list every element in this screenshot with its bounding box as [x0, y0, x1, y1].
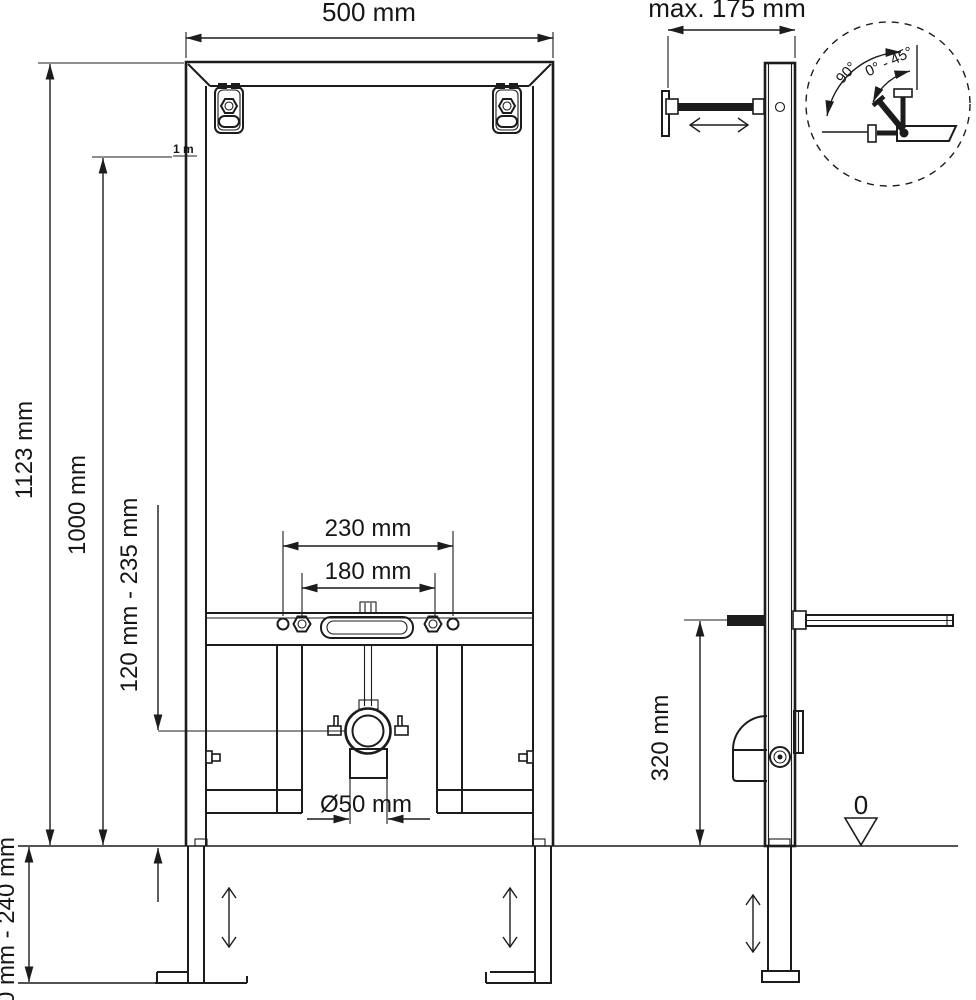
profile-rail	[765, 63, 795, 846]
dim-wall-distance: max. 175 mm	[648, 0, 806, 88]
angle-max-label: 90°	[833, 59, 861, 87]
side-fixing-bolt-right	[519, 751, 533, 763]
technical-drawing-canvas: 0 90° 0° - 45° 500 mm	[0, 0, 976, 1000]
dim-wall-distance-label: max. 175 mm	[648, 0, 806, 23]
dimensions: 500 mm max. 175 mm 1123 mm 1000 mm 1 m	[0, 0, 806, 1000]
drain-elbow	[733, 716, 767, 781]
datum-zero-label: 0	[854, 790, 868, 820]
support-rod-assembly	[727, 611, 953, 629]
dim-feet-range-label: 0 mm - 240 mm	[0, 837, 20, 1000]
dim-drain-diameter: Ø50 mm	[307, 754, 430, 824]
dim-fixture-height-label: 120 mm - 235 mm	[116, 498, 143, 693]
dim-rod-height: 320 mm	[647, 620, 727, 845]
dim-meter-height-label: 1000 mm	[64, 455, 91, 555]
dim-holes-inner: 180 mm	[302, 558, 435, 616]
crossbar-top-stub	[360, 602, 376, 613]
double-arrow-vertical-icon	[222, 888, 236, 947]
mounting-frame-technical-drawing: 0 90° 0° - 45° 500 mm	[0, 0, 976, 1000]
datum-triangle-icon	[845, 818, 877, 845]
dim-fixture-height: 120 mm - 235 mm	[116, 498, 346, 902]
side-foot	[746, 839, 799, 982]
dim-feet-range: 0 mm - 240 mm	[0, 837, 29, 1000]
top-bracket-left	[215, 83, 243, 133]
fixing-screw	[770, 747, 790, 767]
side-view: 0	[662, 63, 953, 982]
frame-outline	[186, 62, 553, 846]
dim-total-height-label: 1123 mm	[11, 401, 38, 499]
drain-support-rod	[359, 645, 378, 709]
datum-symbol: 0	[845, 790, 877, 845]
double-arrow-vertical-icon	[503, 888, 517, 947]
frame-feet	[155, 839, 552, 983]
wall-anchor-assembly	[662, 91, 765, 136]
top-bracket-right	[493, 83, 521, 133]
dim-drain-diameter-label: Ø50 mm	[320, 791, 412, 818]
dim-holes-inner-label: 180 mm	[325, 558, 412, 585]
angle-range-label: 0° - 45°	[863, 44, 916, 81]
cistern-crossbar	[206, 602, 533, 645]
side-fixing-bolt-left	[206, 751, 220, 763]
meter-mark: 1 m	[173, 142, 197, 156]
dim-frame-width: 500 mm	[186, 0, 553, 58]
floor-lines	[18, 846, 958, 983]
support-panels	[206, 645, 533, 813]
meter-mark-label: 1 m	[173, 142, 194, 156]
dim-holes-outer-label: 230 mm	[325, 515, 412, 542]
angle-detail-circle: 90° 0° - 45°	[806, 22, 970, 186]
bracket-detail	[868, 89, 956, 142]
dim-rod-height-label: 320 mm	[647, 695, 674, 782]
double-arrow-vertical-icon	[746, 895, 760, 952]
dim-frame-width-label: 500 mm	[322, 0, 416, 27]
pipe-clamp	[328, 709, 408, 779]
double-arrow-horizontal-icon	[690, 118, 748, 132]
